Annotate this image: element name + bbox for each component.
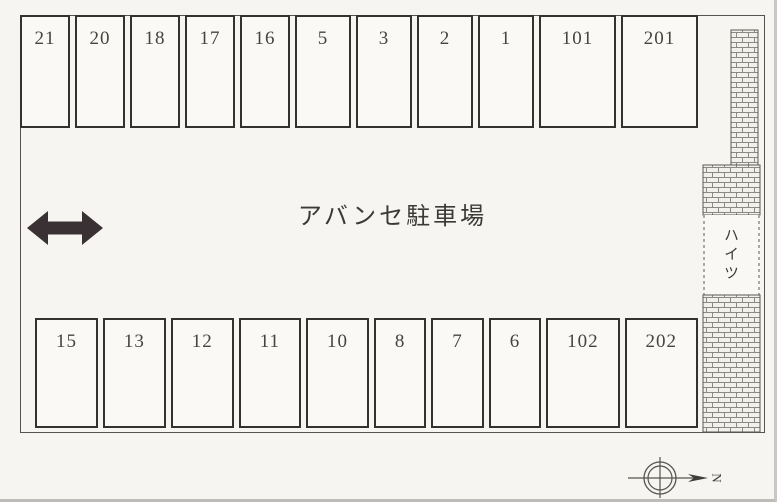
parking-space-2: 2 [417, 15, 473, 128]
north-letter: N [710, 473, 725, 483]
parking-space-13: 13 [103, 318, 166, 428]
space-number: 11 [260, 331, 280, 353]
parking-space-202: 202 [625, 318, 698, 428]
space-number: 10 [327, 331, 348, 353]
space-number: 201 [644, 28, 676, 50]
parking-space-1: 1 [478, 15, 534, 128]
heights-building-label: ハイツ [703, 215, 760, 295]
parking-space-8: 8 [374, 318, 426, 428]
space-number: 16 [255, 28, 276, 50]
space-number: 8 [395, 331, 406, 353]
lot-title: アバンセ駐車場 [20, 196, 765, 231]
north-compass-icon: N [620, 452, 740, 500]
parking-space-6: 6 [489, 318, 541, 428]
space-number: 18 [145, 28, 166, 50]
space-number: 6 [510, 331, 521, 353]
two-way-arrow-icon [26, 208, 104, 248]
space-number: 17 [200, 28, 221, 50]
parking-space-11: 11 [239, 318, 301, 428]
space-number: 1 [501, 28, 512, 50]
bottom-parking-row: 15 13 12 11 10 8 7 6 102 202 [35, 318, 698, 428]
parking-space-5: 5 [295, 15, 351, 128]
parking-space-18: 18 [130, 15, 180, 128]
space-number: 21 [35, 28, 56, 50]
space-number: 3 [379, 28, 390, 50]
space-number: 2 [440, 28, 451, 50]
space-number: 20 [90, 28, 111, 50]
space-number: 13 [124, 331, 145, 353]
parking-space-16: 16 [240, 15, 290, 128]
space-number: 5 [318, 28, 329, 50]
space-number: 101 [562, 28, 594, 50]
space-number: 12 [192, 331, 213, 353]
parking-lot-map: 21 20 18 17 16 5 3 2 1 101 201 15 13 12 … [0, 0, 777, 502]
parking-space-102: 102 [546, 318, 619, 428]
space-number: 202 [646, 331, 678, 353]
parking-space-7: 7 [431, 318, 483, 428]
parking-space-20: 20 [75, 15, 125, 128]
parking-space-101: 101 [539, 15, 616, 128]
brick-wall-step [703, 165, 760, 215]
brick-wall-lower [703, 295, 760, 432]
space-number: 15 [56, 331, 77, 353]
space-number: 102 [567, 331, 599, 353]
parking-space-12: 12 [171, 318, 234, 428]
parking-space-17: 17 [185, 15, 235, 128]
space-number: 7 [452, 331, 463, 353]
top-parking-row: 21 20 18 17 16 5 3 2 1 101 201 [20, 15, 698, 128]
parking-space-201: 201 [621, 15, 698, 128]
parking-space-3: 3 [356, 15, 412, 128]
parking-space-15: 15 [35, 318, 98, 428]
parking-space-10: 10 [306, 318, 369, 428]
brick-wall-upper [731, 30, 758, 165]
parking-space-21: 21 [20, 15, 70, 128]
